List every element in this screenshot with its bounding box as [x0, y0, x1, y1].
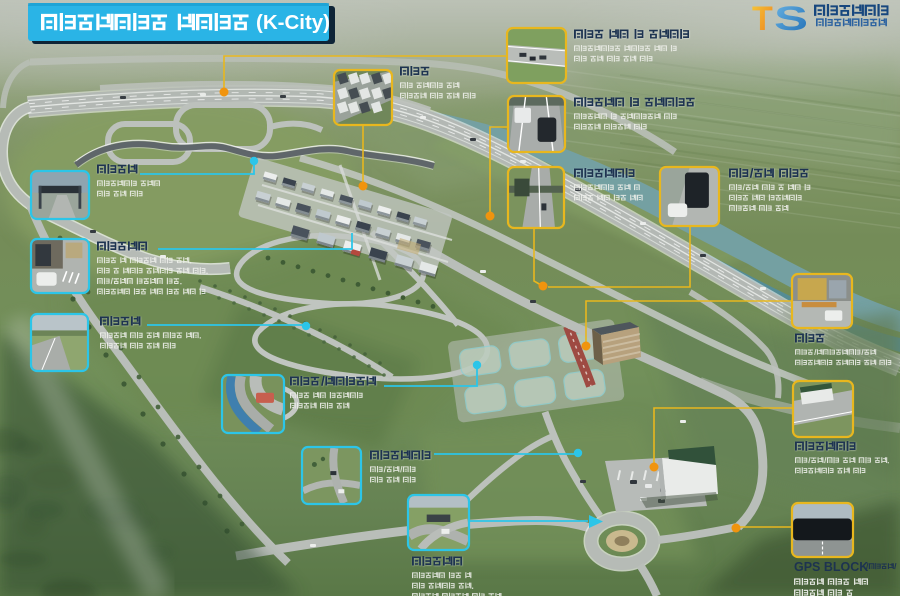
svg-text:S: S — [774, 0, 808, 38]
svg-text:GPS BLOCK: GPS BLOCK — [794, 560, 868, 574]
svg-text:(K-City): (K-City) — [256, 11, 330, 34]
svg-text:T: T — [752, 0, 773, 38]
